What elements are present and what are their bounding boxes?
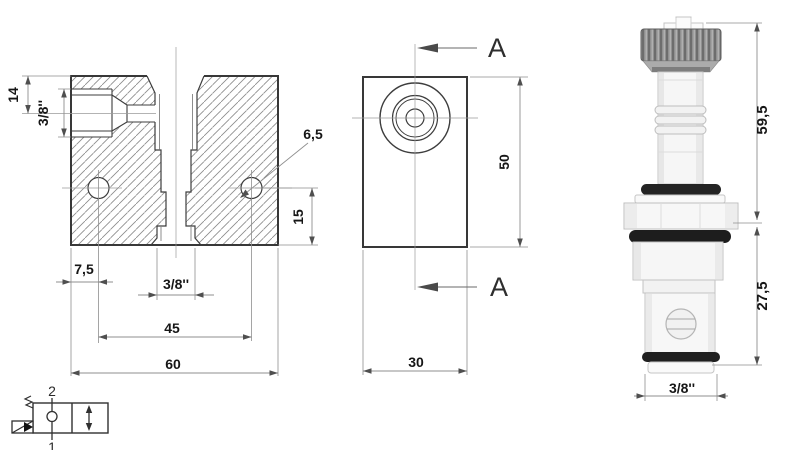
front-section-view: 14 3/8'' 6,5 15 7,5 3/8'' 45 60 [5,47,323,376]
hydraulic-symbol: 2 1 [12,383,108,450]
cartridge-lower-body-shade-left [646,294,652,353]
cartridge-o-ring-lower [642,352,720,362]
cartridge-top-cap [664,17,703,30]
section-arrow-top-icon [417,44,438,53]
dim-label-hole-to-bottom: 15 [290,209,306,225]
dim-label-upper-length: 59,5 [754,105,771,134]
cartridge-o-ring-upper [641,184,721,195]
cartridge-upper-body [633,242,723,280]
dim-label-port-depth: 14 [5,87,21,103]
cartridge-washer [635,195,725,203]
section-label-top: A [488,33,506,63]
cartridge-hex-shade-right [725,204,737,228]
cartridge-upper-body-shade-left [634,243,641,279]
cartridge-lower-body-shade-right [708,294,714,353]
cartridge-step-ring [643,280,715,293]
technical-drawing-page: 14 3/8'' 6,5 15 7,5 3/8'' 45 60 A A 50 3… [0,0,800,450]
section-label-bottom: A [490,272,508,302]
side-view: A A 50 30 [352,33,528,375]
symbol-body [33,403,108,433]
dim-label-edge-to-hole: 7,5 [74,261,94,277]
cartridge-photo: 59,5 27,5 3/8'' [624,17,771,401]
cartridge-nut-band [652,67,710,72]
side-port-bore-fill [71,89,112,137]
section-arrow-bottom-icon [417,283,438,292]
technical-drawing: 14 3/8'' 6,5 15 7,5 3/8'' 45 60 A A 50 3… [0,0,800,450]
dim-label-cartridge-length: 27,5 [754,281,771,310]
port-label-2: 2 [48,383,56,399]
dim-label-width: 60 [165,356,181,372]
dim-label-mount-hole: 6,5 [303,126,323,142]
spring-icon [25,396,33,408]
cartridge-upper-body-shade-right [715,243,722,279]
dim-label-depth: 30 [408,354,424,370]
cartridge-knurled-nut [641,29,721,61]
dim-label-hole-spacing: 45 [164,320,180,336]
dim-label-side-port: 3/8'' [35,100,51,126]
dim-label-height: 50 [496,154,512,170]
cartridge-o-ring-seat [629,230,731,243]
check-valve-ball-icon [47,412,57,422]
cartridge-hex-body [624,203,738,229]
dim-label-bottom-port: 3/8'' [163,276,189,292]
dim-label-thread: 3/8'' [669,380,695,396]
port-label-1: 1 [48,439,56,450]
cartridge-stem-ribs [655,106,706,134]
cartridge-hex-shade-left [625,204,637,228]
cartridge-tip [648,362,714,373]
cartridge-cross-hole [666,309,696,339]
